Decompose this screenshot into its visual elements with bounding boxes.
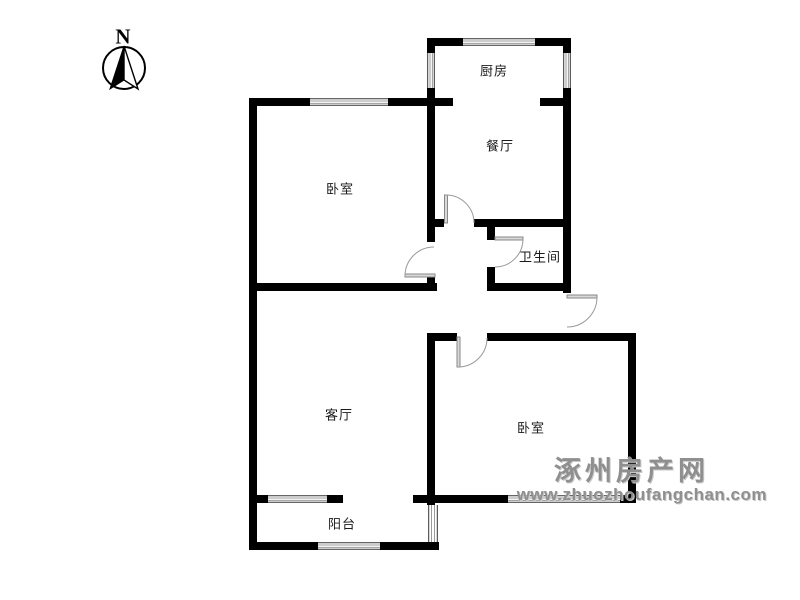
wall-dining-bottom-right [474,219,571,227]
window-balcony-right [428,505,438,542]
room-label-living-room: 客厅 [325,409,353,422]
room-label-bedroom-right: 卧室 [517,422,545,435]
compass-north-label: N [115,25,130,50]
door-bedroom-left [405,247,435,277]
room-label-balcony: 阳台 [328,518,356,531]
wall-bathroom-left-upper [487,227,495,240]
floorplan-drawing [0,0,800,600]
window-living-south [268,495,327,503]
wall-kitchen-bottom-right-stub [540,98,571,106]
watermark-site-url: www.zhuozhoufangchan.com [517,486,767,503]
wall-bathroom-bottom [487,283,571,291]
door-bedroom-right [457,337,487,367]
window-kitchen-top [463,38,535,46]
window-bedroom-left-top [310,98,388,106]
watermark: 涿州房产网 www.zhuozhoufangchan.com [517,457,767,503]
room-label-kitchen: 厨房 [480,65,508,78]
window-kitchen-right [563,53,571,88]
room-label-bedroom-left: 卧室 [326,183,354,196]
wall-bedroom-right-top [487,333,636,341]
wall-divider-lower [427,333,435,505]
door-entry [567,295,597,327]
watermark-site-name: 涿州房产网 [517,457,767,485]
window-balcony-bottom [318,542,380,550]
window-kitchen-left [427,53,435,88]
door-dining [445,195,475,223]
wall-dining-bottom-left [427,219,444,227]
wall-bedroom-left-bottom [249,283,437,291]
north-arrow-icon [103,46,145,89]
wall-left [249,98,257,550]
room-label-bathroom: 卫生间 [519,251,561,264]
room-label-dining-room: 餐厅 [486,140,514,153]
floorplan-page: N 厨房 餐厅 卧室 卫生间 客厅 卧室 阳台 涿州房产网 www.zhuozh… [0,0,800,600]
